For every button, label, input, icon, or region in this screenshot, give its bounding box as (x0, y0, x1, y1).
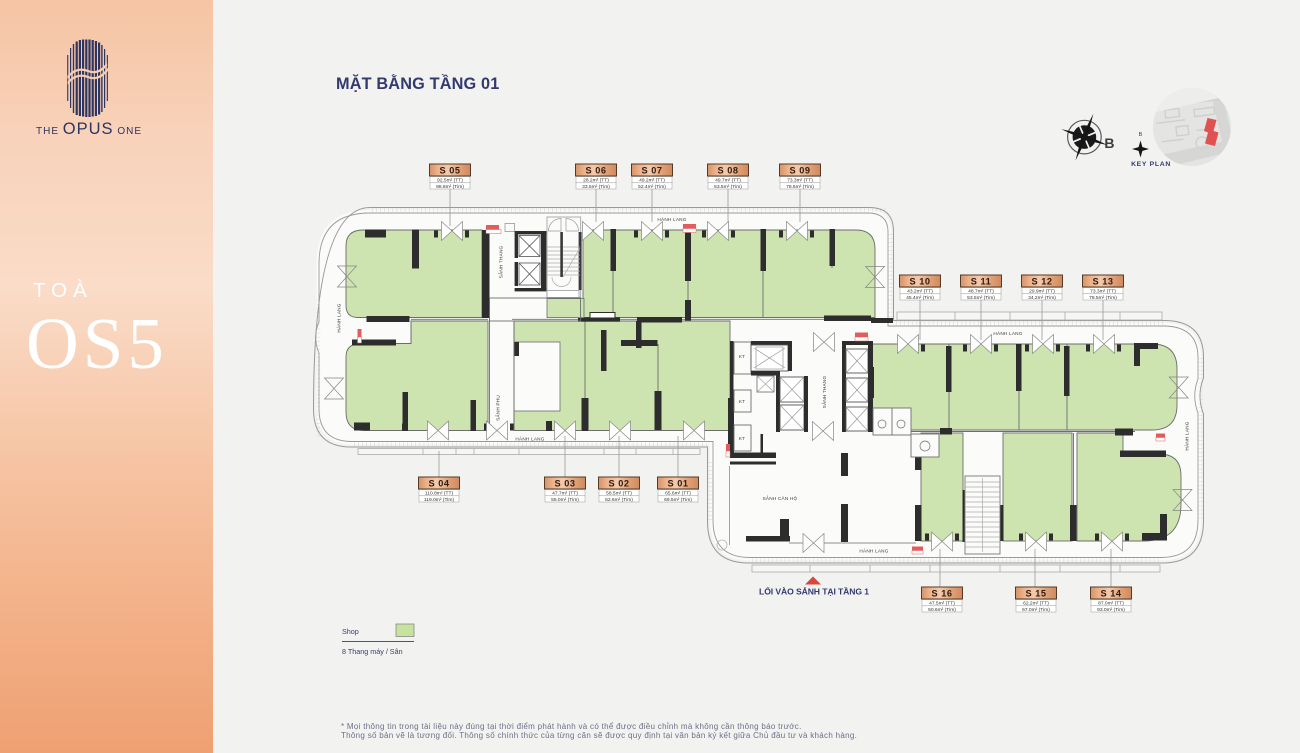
svg-text:62.6m² (Tim): 62.6m² (Tim) (605, 497, 633, 503)
svg-text:SẢNH CĂN HỘ: SẢNH CĂN HỘ (763, 495, 798, 501)
svg-text:8 Thang máy / Sân: 8 Thang máy / Sân (342, 647, 403, 656)
svg-text:Shop: Shop (342, 627, 359, 636)
svg-text:S 10: S 10 (910, 276, 931, 286)
svg-text:S 03: S 03 (555, 478, 576, 488)
svg-text:S 02: S 02 (609, 478, 630, 488)
svg-text:S 01: S 01 (668, 478, 689, 488)
svg-text:LỐI VÀO SẢNH TẠI TẦNG 1: LỐI VÀO SẢNH TẠI TẦNG 1 (759, 586, 869, 597)
svg-text:45.4m² (Tim): 45.4m² (Tim) (906, 295, 934, 301)
svg-text:HÀNH LANG: HÀNH LANG (859, 548, 888, 554)
svg-text:55.0m² (Tim): 55.0m² (Tim) (551, 497, 579, 503)
svg-text:HÀNH LANG: HÀNH LANG (1184, 421, 1190, 450)
svg-text:53.5m² (Tim): 53.5m² (Tim) (967, 295, 995, 301)
svg-text:SẢNH THANG: SẢNH THANG (821, 376, 827, 409)
svg-text:69.5m² (Tim): 69.5m² (Tim) (664, 497, 692, 503)
svg-text:98.8m² (Tim): 98.8m² (Tim) (436, 184, 464, 190)
svg-text:S 05: S 05 (440, 165, 461, 175)
svg-text:HÀNH LANG: HÀNH LANG (515, 436, 544, 442)
svg-text:50.6m² (Tim): 50.6m² (Tim) (928, 607, 956, 613)
svg-text:34.2m² (Tim): 34.2m² (Tim) (1028, 295, 1056, 301)
svg-text:KT: KT (739, 436, 745, 441)
svg-text:33.5m² (Tim): 33.5m² (Tim) (582, 184, 610, 190)
svg-text:B: B (1104, 135, 1114, 151)
svg-text:SẢNH THANG: SẢNH THANG (498, 246, 504, 279)
svg-text:KEY PLAN: KEY PLAN (1131, 161, 1171, 168)
svg-text:B: B (1139, 132, 1143, 138)
svg-text:93.0m² (Tim): 93.0m² (Tim) (1097, 607, 1125, 613)
svg-text:S 12: S 12 (1032, 276, 1053, 286)
svg-text:119.0m² (Tim): 119.0m² (Tim) (424, 497, 455, 503)
svg-text:S 14: S 14 (1101, 588, 1122, 598)
svg-text:53.5m² (Tim): 53.5m² (Tim) (714, 184, 742, 190)
svg-text:KT: KT (739, 354, 745, 359)
svg-text:78.5m² (Tim): 78.5m² (Tim) (1089, 295, 1117, 301)
svg-text:HÀNH LANG: HÀNH LANG (657, 216, 686, 222)
svg-text:52.4m² (Tim): 52.4m² (Tim) (638, 184, 666, 190)
svg-text:78.6m² (Tim): 78.6m² (Tim) (786, 184, 814, 190)
svg-text:HÀNH LANG: HÀNH LANG (336, 303, 342, 332)
svg-text:S 08: S 08 (718, 165, 739, 175)
svg-text:S 16: S 16 (932, 588, 953, 598)
svg-text:S 06: S 06 (586, 165, 607, 175)
svg-text:S 09: S 09 (790, 165, 811, 175)
svg-text:S 04: S 04 (429, 478, 450, 488)
svg-text:S 13: S 13 (1093, 276, 1114, 286)
svg-text:S 15: S 15 (1026, 588, 1047, 598)
svg-text:HÀNH LANG: HÀNH LANG (993, 330, 1022, 336)
svg-text:S 07: S 07 (642, 165, 663, 175)
svg-text:S 11: S 11 (971, 276, 991, 286)
svg-text:KT: KT (739, 399, 745, 404)
svg-text:67.0m² (Tim): 67.0m² (Tim) (1022, 607, 1050, 613)
svg-text:SẢNH PHỤ: SẢNH PHỤ (495, 395, 501, 421)
